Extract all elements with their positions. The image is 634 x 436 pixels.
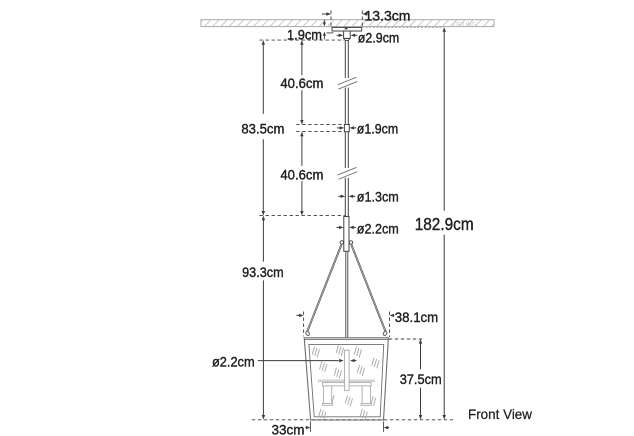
svg-text:38.1cm: 38.1cm [395, 310, 438, 326]
svg-text:83.5cm: 83.5cm [241, 121, 284, 137]
svg-text:93.3cm: 93.3cm [242, 265, 284, 281]
svg-text:182.9cm: 182.9cm [415, 214, 474, 234]
svg-text:ø2.2cm: ø2.2cm [357, 222, 399, 238]
svg-text:ø1.9cm: ø1.9cm [357, 122, 398, 138]
svg-text:1.9cm: 1.9cm [287, 27, 322, 43]
svg-text:40.6cm: 40.6cm [280, 76, 323, 92]
svg-text:33cm: 33cm [272, 423, 305, 436]
svg-text:Front View: Front View [468, 407, 532, 422]
svg-text:13.3cm: 13.3cm [365, 9, 411, 25]
svg-text:ø2.9cm: ø2.9cm [358, 30, 400, 46]
svg-text:ø1.3cm: ø1.3cm [357, 190, 399, 206]
svg-text:37.5cm: 37.5cm [400, 372, 442, 388]
svg-text:40.6cm: 40.6cm [280, 167, 323, 183]
svg-text:CEILING: CEILING [453, 21, 476, 28]
svg-text:ø2.2cm: ø2.2cm [212, 354, 255, 370]
